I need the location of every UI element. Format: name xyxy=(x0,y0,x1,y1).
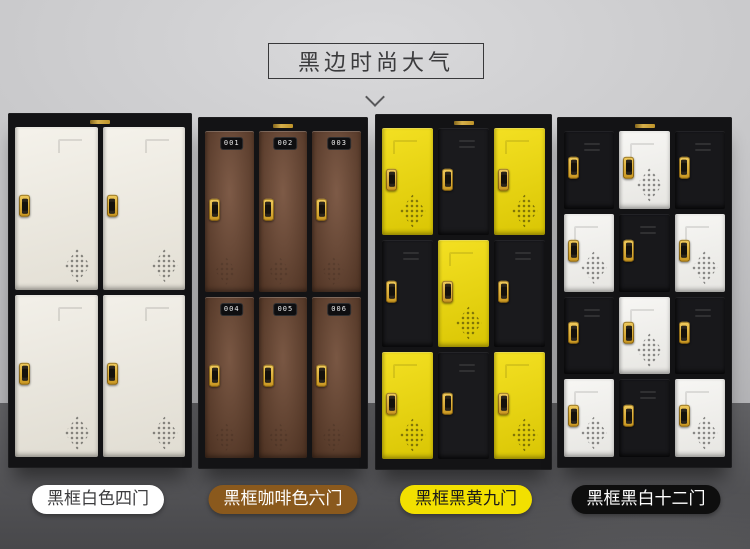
vent-grille-icon xyxy=(456,306,482,340)
door-emboss xyxy=(630,143,654,157)
locker-door xyxy=(564,297,614,375)
vent-slots-icon xyxy=(584,309,600,317)
door-emboss xyxy=(145,307,169,321)
vent-grille-icon xyxy=(152,249,178,283)
locker-door xyxy=(382,128,433,235)
vent-slots-icon xyxy=(584,143,600,151)
locker-door xyxy=(619,297,669,375)
locker-door xyxy=(619,214,669,292)
door-lock-icon xyxy=(386,168,397,190)
locker-door xyxy=(675,131,725,209)
locker-black-white-twelve-door xyxy=(557,117,732,468)
locker-top-bar xyxy=(382,117,545,128)
vent-slots-icon xyxy=(695,143,711,151)
locker-black-yellow-nine-door xyxy=(375,114,552,470)
brand-logo-icon xyxy=(90,120,110,124)
door-emboss xyxy=(505,140,529,154)
door-lock-icon xyxy=(568,157,579,179)
locker-door xyxy=(564,131,614,209)
product-label-black-yellow-nine-door: 黑框黑黄九门 xyxy=(400,485,532,514)
door-grid xyxy=(564,131,725,457)
vent-grille-icon xyxy=(512,194,538,228)
door-lock-icon xyxy=(209,198,220,220)
vent-slots-icon xyxy=(640,226,656,234)
vent-grille-icon xyxy=(269,257,291,285)
vent-grille-icon xyxy=(152,416,178,450)
door-lock-icon xyxy=(498,280,509,302)
locker-door xyxy=(382,352,433,459)
vent-slots-icon xyxy=(515,252,531,260)
locker-door xyxy=(675,297,725,375)
door-lock-icon xyxy=(442,168,453,190)
locker-door xyxy=(15,295,98,458)
brand-logo-icon xyxy=(635,124,655,128)
door-lock-icon xyxy=(263,198,274,220)
door-emboss xyxy=(685,391,709,405)
door-number-plate: 001 xyxy=(221,138,243,149)
locker-door: 005 xyxy=(259,297,308,458)
locker-door xyxy=(15,127,98,290)
vent-slots-icon xyxy=(695,309,711,317)
locker-door xyxy=(675,379,725,457)
locker-door xyxy=(103,127,186,290)
door-grid xyxy=(382,128,545,459)
door-emboss xyxy=(685,226,709,240)
vent-grille-icon xyxy=(512,418,538,452)
product-label-coffee-six-door: 黑框咖啡色六门 xyxy=(209,485,358,514)
door-number-plate: 003 xyxy=(328,138,350,149)
locker-door xyxy=(438,240,489,347)
door-emboss xyxy=(574,391,598,405)
vent-grille-icon xyxy=(581,416,607,450)
vent-grille-icon xyxy=(215,257,237,285)
locker-door xyxy=(494,352,545,459)
locker-coffee-six-door: 001002003004005006 xyxy=(198,117,368,469)
locker-door: 006 xyxy=(312,297,361,458)
vent-grille-icon xyxy=(581,251,607,285)
banner-title: 黑边时尚大气 xyxy=(268,43,484,79)
vent-grille-icon xyxy=(692,251,718,285)
locker-door xyxy=(438,128,489,235)
door-lock-icon xyxy=(568,322,579,344)
locker-top-bar xyxy=(205,120,361,131)
product-label-black-white-twelve-door: 黑框黑白十二门 xyxy=(572,485,721,514)
door-emboss xyxy=(145,139,169,153)
locker-door xyxy=(438,352,489,459)
locker-door xyxy=(619,379,669,457)
door-lock-icon xyxy=(623,239,634,261)
door-lock-icon xyxy=(386,392,397,414)
vent-slots-icon xyxy=(459,140,475,148)
door-lock-icon xyxy=(19,195,30,217)
vent-grille-icon xyxy=(637,333,663,367)
door-lock-icon xyxy=(679,405,690,427)
door-emboss xyxy=(574,226,598,240)
vent-grille-icon xyxy=(269,423,291,451)
vent-slots-icon xyxy=(640,391,656,399)
locker-door: 002 xyxy=(259,131,308,292)
door-lock-icon xyxy=(386,280,397,302)
door-number-plate: 004 xyxy=(221,304,243,315)
vent-grille-icon xyxy=(637,168,663,202)
door-number-plate: 002 xyxy=(275,138,297,149)
vent-grille-icon xyxy=(400,194,426,228)
door-emboss xyxy=(505,364,529,378)
vent-grille-icon xyxy=(322,423,344,451)
locker-door xyxy=(382,240,433,347)
door-lock-icon xyxy=(498,168,509,190)
door-lock-icon xyxy=(679,322,690,344)
vent-grille-icon xyxy=(322,257,344,285)
door-lock-icon xyxy=(498,392,509,414)
locker-door: 001 xyxy=(205,131,254,292)
door-lock-icon xyxy=(316,198,327,220)
door-number-plate: 006 xyxy=(328,304,350,315)
door-lock-icon xyxy=(679,157,690,179)
door-lock-icon xyxy=(568,405,579,427)
product-label-white-four-door: 黑框白色四门 xyxy=(32,485,164,514)
locker-top-bar xyxy=(564,120,725,131)
locker-door xyxy=(564,379,614,457)
locker-white-four-door xyxy=(8,113,192,468)
door-lock-icon xyxy=(568,239,579,261)
locker-door xyxy=(103,295,186,458)
locker-door xyxy=(619,131,669,209)
vent-grille-icon xyxy=(400,418,426,452)
banner-title-text: 黑边时尚大气 xyxy=(298,45,454,77)
vent-grille-icon xyxy=(65,249,91,283)
door-lock-icon xyxy=(442,280,453,302)
locker-door: 004 xyxy=(205,297,254,458)
door-emboss xyxy=(58,139,82,153)
door-lock-icon xyxy=(19,363,30,385)
door-emboss xyxy=(393,364,417,378)
vent-grille-icon xyxy=(215,423,237,451)
vent-slots-icon xyxy=(459,364,475,372)
locker-door xyxy=(494,128,545,235)
brand-logo-icon xyxy=(454,121,474,125)
door-lock-icon xyxy=(209,364,220,386)
door-lock-icon xyxy=(623,405,634,427)
door-emboss xyxy=(58,307,82,321)
door-emboss xyxy=(630,309,654,323)
locker-door xyxy=(564,214,614,292)
door-grid: 001002003004005006 xyxy=(205,131,361,458)
door-lock-icon xyxy=(442,392,453,414)
locker-door xyxy=(494,240,545,347)
door-number-plate: 005 xyxy=(275,304,297,315)
door-lock-icon xyxy=(263,364,274,386)
door-lock-icon xyxy=(623,157,634,179)
door-lock-icon xyxy=(623,322,634,344)
door-grid xyxy=(15,127,185,457)
door-lock-icon xyxy=(107,195,118,217)
door-lock-icon xyxy=(679,239,690,261)
product-banner: 黑边时尚大气 黑框白色四门001002003004005006黑框咖啡色六门黑框… xyxy=(0,0,750,549)
door-lock-icon xyxy=(316,364,327,386)
locker-door xyxy=(675,214,725,292)
door-emboss xyxy=(393,140,417,154)
vent-grille-icon xyxy=(692,416,718,450)
door-lock-icon xyxy=(107,363,118,385)
door-emboss xyxy=(449,252,473,266)
brand-logo-icon xyxy=(273,124,293,128)
locker-top-bar xyxy=(15,116,185,127)
locker-door: 003 xyxy=(312,131,361,292)
vent-slots-icon xyxy=(403,252,419,260)
vent-grille-icon xyxy=(65,416,91,450)
